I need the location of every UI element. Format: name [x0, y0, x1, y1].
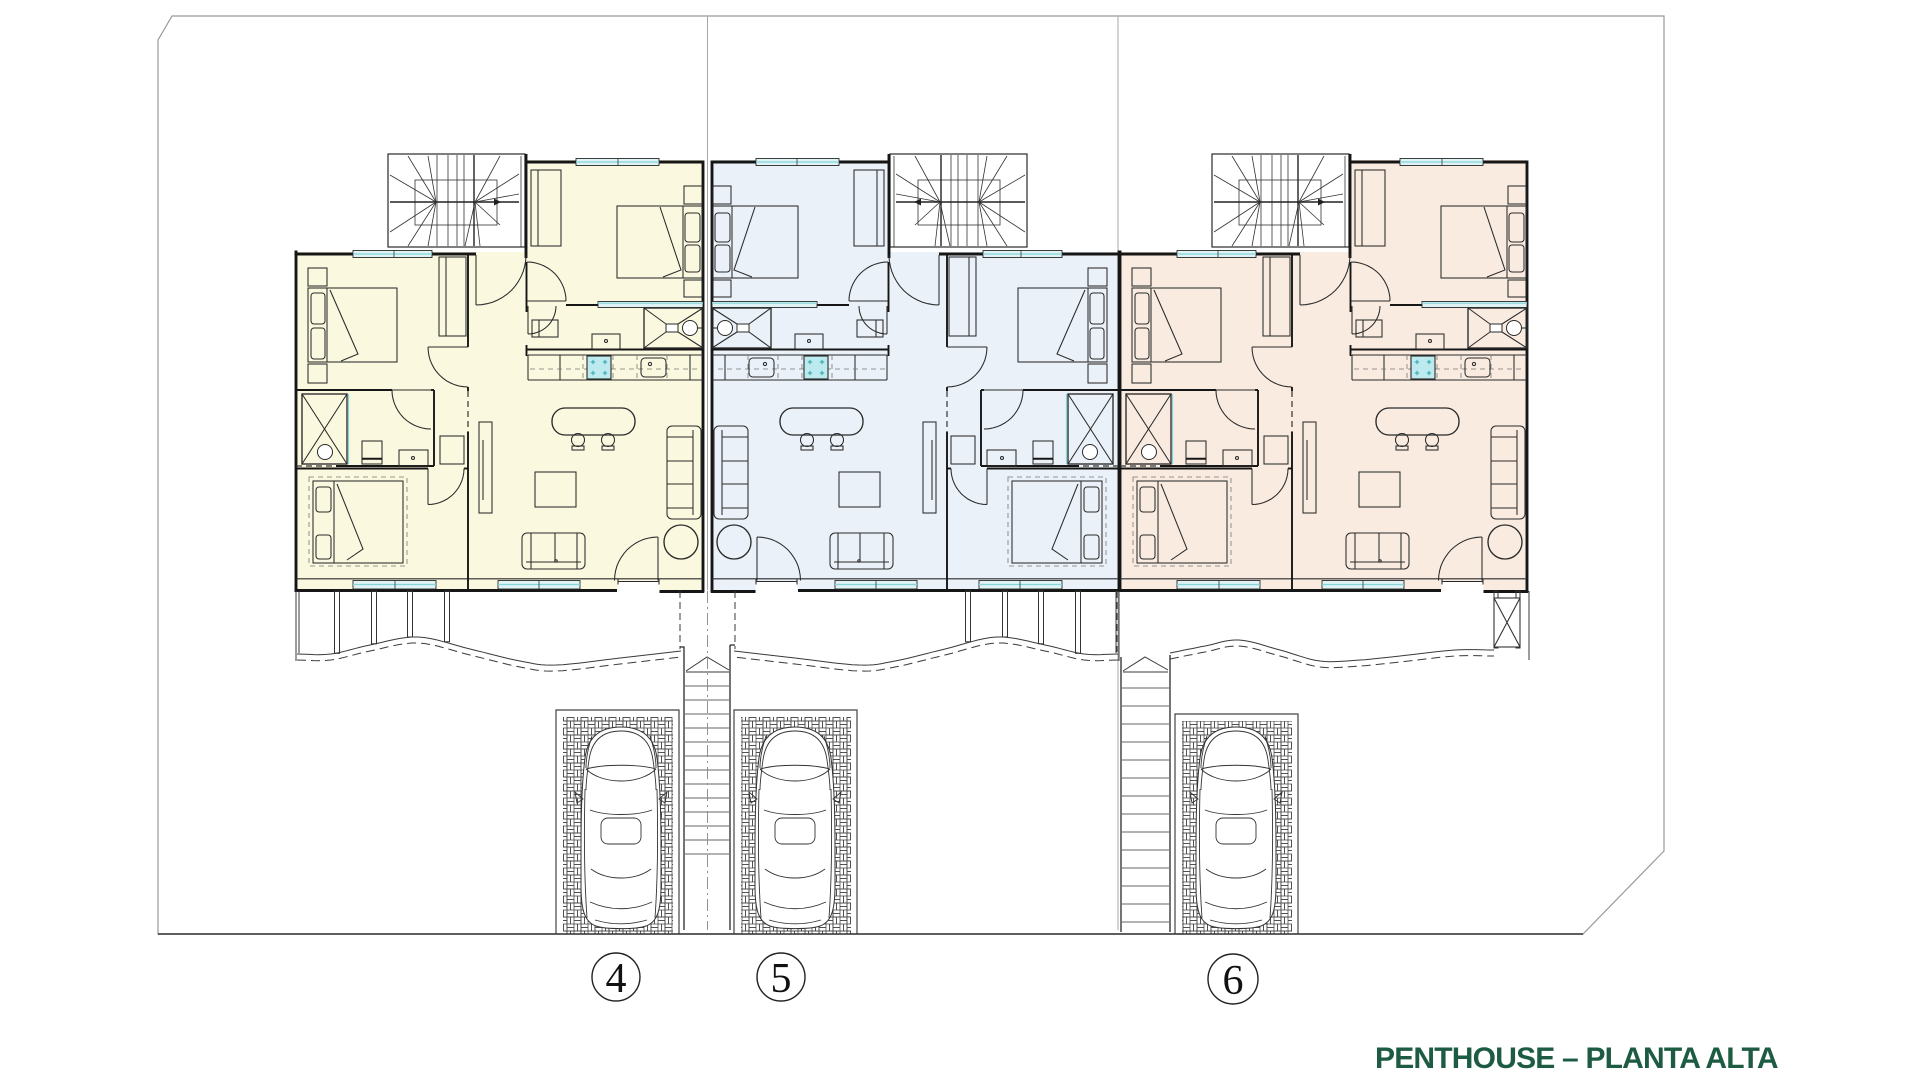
svg-text:6: 6: [1223, 958, 1244, 1004]
svg-text:4: 4: [606, 956, 627, 1002]
svg-text:5: 5: [771, 956, 792, 1002]
